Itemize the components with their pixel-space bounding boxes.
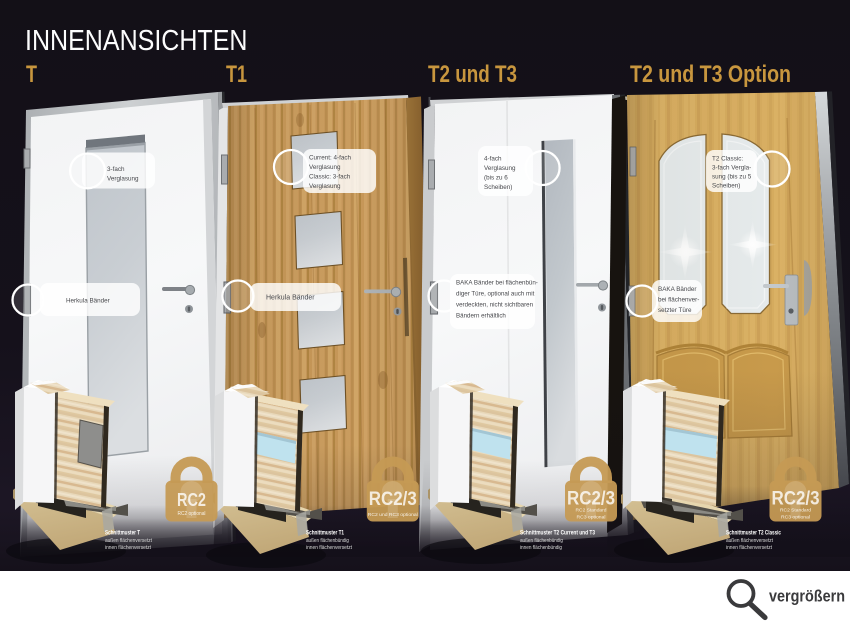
svg-text:diger Türe, optional auch mit: diger Türe, optional auch mit [456, 291, 535, 298]
svg-text:Herkula Bänder: Herkula Bänder [266, 295, 315, 302]
svg-text:innen flächenversetzt: innen flächenversetzt [105, 545, 151, 551]
svg-text:RC2/3: RC2/3 [567, 489, 615, 510]
svg-text:RC3 optional: RC3 optional [781, 514, 810, 520]
svg-text:4-fach: 4-fach [484, 155, 502, 162]
svg-text:außen flächenbündig: außen flächenbündig [306, 538, 349, 544]
svg-text:Schnittmuster T: Schnittmuster T [105, 531, 140, 537]
svg-text:(bis zu 6: (bis zu 6 [484, 174, 508, 181]
svg-text:Schnittmuster T2 Classic: Schnittmuster T2 Classic [726, 531, 781, 537]
svg-text:BAKA Bänder bei flächenbün-: BAKA Bänder bei flächenbün- [456, 280, 538, 287]
svg-text:vergrößern: vergrößern [769, 587, 845, 606]
svg-text:T2 Classic:: T2 Classic: [712, 156, 743, 163]
svg-text:3-fach: 3-fach [107, 166, 125, 173]
svg-text:RC2 Standard: RC2 Standard [576, 508, 607, 514]
svg-text:RC2/3: RC2/3 [369, 489, 417, 510]
svg-text:INNENANSICHTEN: INNENANSICHTEN [25, 25, 248, 57]
svg-text:außen flächenversetzt: außen flächenversetzt [726, 538, 773, 544]
svg-text:setzter Türe: setzter Türe [658, 307, 692, 314]
svg-text:Current: 4-fach: Current: 4-fach [309, 155, 351, 162]
svg-text:Herkula Bänder: Herkula Bänder [66, 298, 110, 305]
svg-text:RC3 optional: RC3 optional [577, 514, 606, 520]
svg-text:RC2 und RC3 optional: RC2 und RC3 optional [368, 512, 418, 518]
svg-text:T: T [26, 61, 37, 88]
svg-text:RC2 Standard: RC2 Standard [780, 508, 811, 514]
svg-text:Verglasung: Verglasung [107, 176, 139, 183]
svg-text:RC2: RC2 [177, 490, 206, 510]
svg-text:Classic: 3-fach: Classic: 3-fach [309, 174, 351, 181]
svg-text:sung (bis zu 5: sung (bis zu 5 [712, 174, 752, 181]
svg-text:innen flächenversetzt: innen flächenversetzt [306, 545, 352, 551]
svg-text:Scheiben): Scheiben) [712, 183, 740, 190]
svg-text:bei flächenver-: bei flächenver- [658, 297, 699, 304]
svg-text:innen flächenversetzt: innen flächenversetzt [726, 545, 772, 551]
svg-text:RC2/3: RC2/3 [772, 489, 820, 510]
svg-text:verdeckten, nicht sichtbaren: verdeckten, nicht sichtbaren [456, 302, 534, 309]
svg-text:außen flächenbündig: außen flächenbündig [520, 538, 563, 544]
svg-text:Bändern erhältlich: Bändern erhältlich [456, 313, 506, 320]
svg-text:Schnittmuster T1: Schnittmuster T1 [306, 531, 345, 537]
svg-text:Schnittmuster T2 Current und T: Schnittmuster T2 Current und T3 [520, 531, 596, 537]
svg-text:Verglasung: Verglasung [484, 165, 516, 172]
svg-text:3-fach Vergla-: 3-fach Vergla- [712, 165, 751, 172]
svg-text:RC2 optional: RC2 optional [178, 511, 206, 517]
svg-text:innen flächenbündig: innen flächenbündig [520, 545, 562, 551]
svg-text:Verglasung: Verglasung [309, 164, 341, 171]
svg-text:T2 und T3: T2 und T3 [428, 61, 517, 88]
svg-text:T1: T1 [226, 61, 247, 88]
svg-text:Scheiben): Scheiben) [484, 184, 512, 191]
svg-text:Verglasung: Verglasung [309, 183, 341, 190]
svg-text:T2 und T3 Option: T2 und T3 Option [630, 61, 791, 88]
svg-text:außen flächenversetzt: außen flächenversetzt [105, 538, 152, 544]
svg-text:BAKA Bänder: BAKA Bänder [658, 286, 697, 293]
